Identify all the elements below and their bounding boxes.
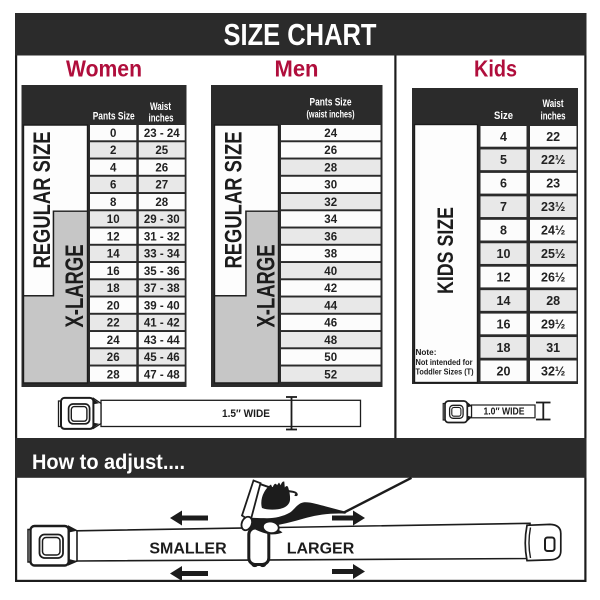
svg-text:16: 16 (497, 317, 511, 331)
svg-text:31 - 32: 31 - 32 (144, 231, 180, 243)
svg-text:22: 22 (107, 318, 120, 330)
svg-text:26½: 26½ (541, 270, 565, 284)
svg-text:34: 34 (324, 214, 337, 226)
svg-text:10: 10 (497, 247, 511, 261)
svg-text:25½: 25½ (541, 247, 565, 261)
svg-text:24: 24 (324, 128, 337, 140)
svg-text:27: 27 (155, 180, 168, 192)
svg-text:7: 7 (500, 200, 507, 214)
svg-text:41 - 42: 41 - 42 (144, 318, 180, 330)
svg-text:42: 42 (324, 283, 337, 295)
svg-text:26: 26 (324, 145, 337, 157)
svg-text:inches: inches (541, 111, 566, 123)
svg-text:18: 18 (497, 341, 511, 355)
svg-text:Waist: Waist (543, 98, 564, 110)
svg-text:Men: Men (275, 56, 319, 82)
svg-text:4: 4 (110, 162, 117, 174)
svg-text:47 - 48: 47 - 48 (144, 369, 180, 381)
svg-text:(waist inches): (waist inches) (307, 109, 355, 121)
svg-text:X-LARGE: X-LARGE (253, 245, 281, 328)
svg-text:24: 24 (107, 335, 120, 347)
svg-text:33 - 34: 33 - 34 (144, 249, 180, 261)
svg-text:25: 25 (155, 145, 168, 157)
svg-text:0: 0 (110, 128, 116, 140)
svg-text:1.0″ WIDE: 1.0″ WIDE (484, 407, 525, 418)
svg-text:14: 14 (107, 249, 120, 261)
svg-text:26: 26 (155, 162, 168, 174)
svg-text:30: 30 (324, 180, 337, 192)
svg-text:23½: 23½ (541, 200, 565, 214)
svg-text:Women: Women (66, 56, 142, 82)
svg-text:4: 4 (500, 130, 507, 144)
svg-text:LARGER: LARGER (287, 541, 355, 558)
svg-text:12: 12 (107, 231, 120, 243)
svg-text:Toddler Sizes (T): Toddler Sizes (T) (416, 368, 474, 377)
svg-text:Waist: Waist (150, 101, 171, 113)
svg-text:38: 38 (324, 249, 337, 261)
svg-text:6: 6 (500, 177, 507, 191)
svg-text:29 - 30: 29 - 30 (144, 214, 180, 226)
svg-text:SMALLER: SMALLER (149, 541, 227, 558)
svg-text:SIZE CHART: SIZE CHART (224, 17, 377, 52)
svg-text:2: 2 (110, 145, 116, 157)
svg-text:22½: 22½ (541, 153, 565, 167)
svg-text:20: 20 (497, 364, 511, 378)
svg-text:1.5″ WIDE: 1.5″ WIDE (222, 408, 270, 420)
svg-text:28: 28 (155, 197, 168, 209)
svg-text:52: 52 (324, 369, 337, 381)
svg-text:Kids: Kids (474, 56, 517, 82)
svg-text:inches: inches (149, 112, 174, 124)
svg-text:KIDS SIZE: KIDS SIZE (433, 207, 458, 294)
svg-text:14: 14 (497, 294, 511, 308)
svg-text:36: 36 (324, 231, 337, 243)
svg-text:16: 16 (107, 266, 120, 278)
svg-text:18: 18 (107, 283, 120, 295)
svg-text:43 - 44: 43 - 44 (144, 335, 180, 347)
svg-text:28: 28 (324, 162, 337, 174)
svg-text:28: 28 (546, 294, 560, 308)
svg-text:Note:: Note: (416, 348, 437, 357)
svg-text:50: 50 (324, 352, 337, 364)
svg-text:26: 26 (107, 352, 120, 364)
svg-text:5: 5 (500, 153, 507, 167)
svg-text:8: 8 (500, 224, 507, 238)
svg-text:32: 32 (324, 197, 337, 209)
svg-text:48: 48 (324, 335, 337, 347)
svg-text:X-LARGE: X-LARGE (61, 245, 89, 328)
svg-text:12: 12 (497, 270, 511, 284)
svg-text:23: 23 (546, 177, 560, 191)
svg-text:20: 20 (107, 300, 120, 312)
svg-text:REGULAR SIZE: REGULAR SIZE (29, 132, 56, 269)
svg-text:6: 6 (110, 180, 116, 192)
svg-text:24½: 24½ (541, 224, 565, 238)
svg-text:8: 8 (110, 197, 117, 209)
svg-text:44: 44 (324, 300, 337, 312)
svg-text:REGULAR SIZE: REGULAR SIZE (221, 132, 248, 269)
svg-text:Size: Size (494, 110, 513, 122)
svg-text:37 - 38: 37 - 38 (144, 283, 180, 295)
svg-text:39 - 40: 39 - 40 (144, 300, 180, 312)
svg-text:Not intended for: Not intended for (416, 358, 474, 367)
svg-text:32½: 32½ (541, 364, 565, 378)
svg-text:46: 46 (324, 318, 337, 330)
svg-text:23 - 24: 23 - 24 (144, 128, 180, 140)
svg-text:40: 40 (324, 266, 337, 278)
svg-text:10: 10 (107, 214, 120, 226)
svg-text:22: 22 (546, 130, 560, 144)
svg-text:45 - 46: 45 - 46 (144, 352, 180, 364)
svg-text:How to adjust....: How to adjust.... (32, 451, 185, 474)
svg-text:Pants Size: Pants Size (93, 111, 135, 123)
svg-text:31: 31 (546, 341, 560, 355)
svg-text:35 - 36: 35 - 36 (144, 266, 180, 278)
svg-text:Pants Size: Pants Size (310, 97, 352, 109)
svg-text:29½: 29½ (541, 317, 565, 331)
svg-text:28: 28 (107, 369, 120, 381)
